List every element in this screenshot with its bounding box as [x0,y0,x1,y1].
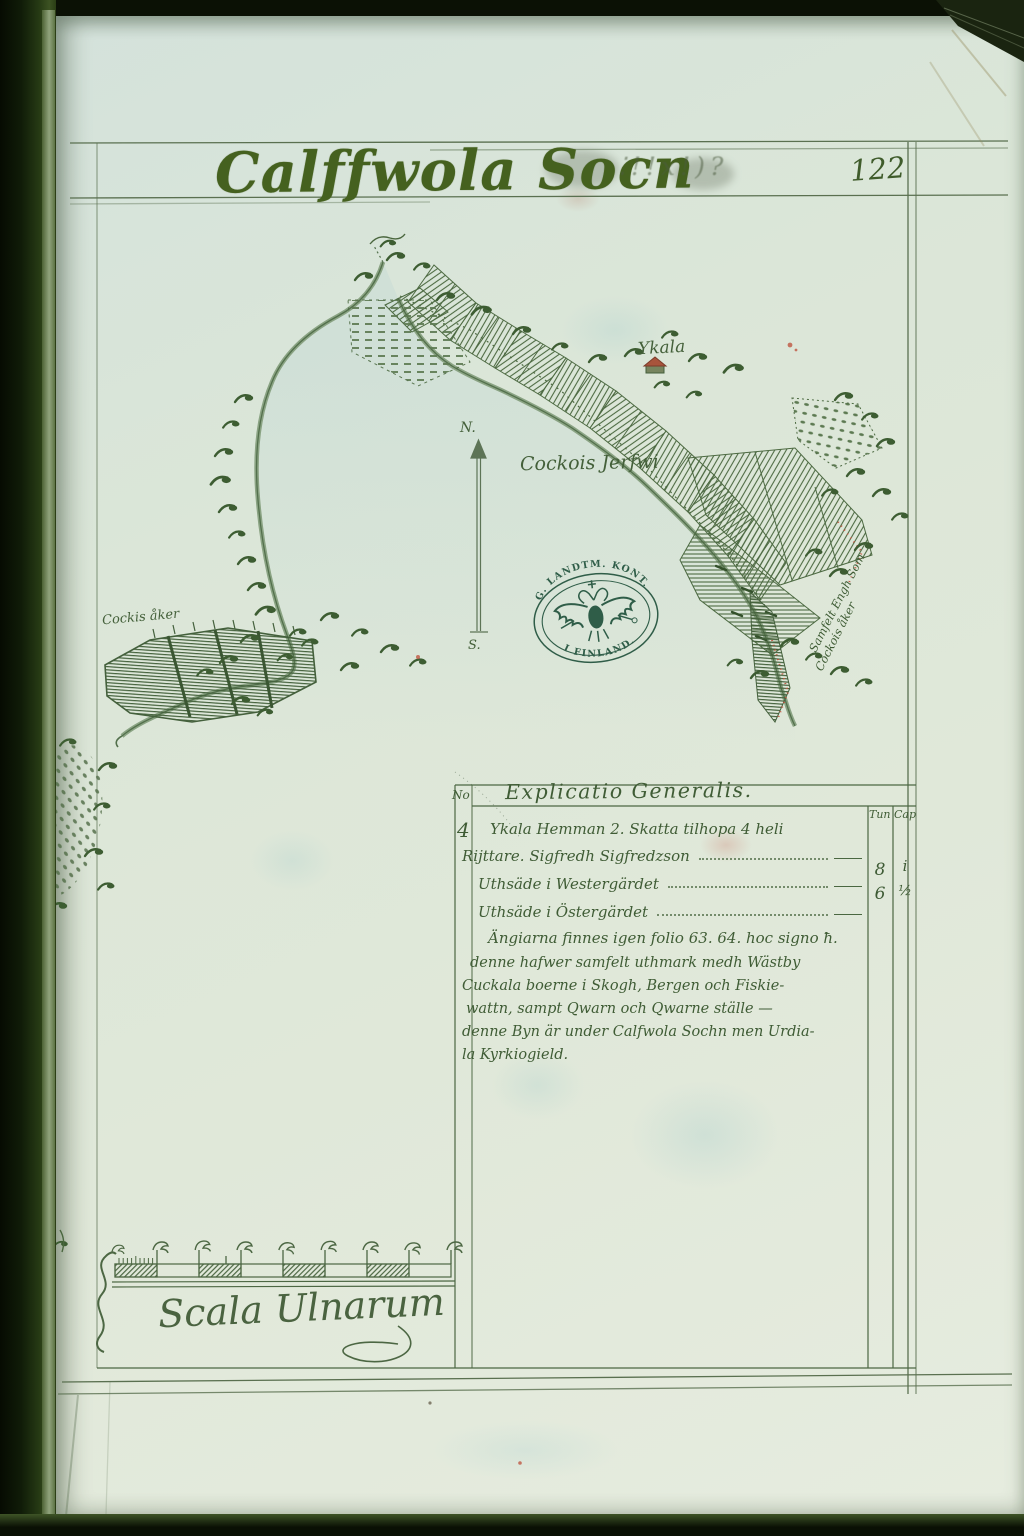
tun-column-header: Tun [869,808,891,821]
cap-value: ½ [894,883,916,899]
margin-doodle [5,737,118,1252]
tun-value: 6 [870,884,890,904]
compass-north-label: N. [460,420,476,436]
tun-value: 8 [870,860,890,880]
village-label: Ykala [638,337,686,359]
entry-line: Rijttare. Sigfredh Sigfredzson [462,847,862,865]
house-icon [644,357,666,373]
note-line: denne Byn är under Calfwola Sochn men Ur… [462,1024,815,1040]
entry-line: Uthsäde i Westergärdet [478,875,862,893]
title-smudge-marks: ⁚!!x!)? [618,152,728,181]
map-drawing: G. LANDTM. KONT. I FINLAND. [0,0,1024,1536]
entry-line: Ykala Hemman 2. Skatta tilhopa 4 heli [490,820,862,838]
compass-south-label: S. [468,638,481,653]
note-line: wattn, sampt Qwarn och Qwarne ställe — [466,1001,773,1017]
page-stack-corner [930,0,1024,146]
table-rules [97,785,916,1368]
cap-column-header: Cap [894,808,916,821]
entry-line: Ängiarna finnes igen folio 63. 64. hoc s… [488,929,862,947]
no-column-header: No [452,788,470,802]
entry-line: Uthsäde i Östergärdet [478,903,862,921]
book-edge-bottom [0,1514,1024,1536]
scale-flourish [97,1252,116,1352]
note-line: la Kyrkiogield. [462,1047,568,1063]
lake-label: Cockois Jerfwi [520,451,659,475]
page-number: 122 [849,150,907,188]
note-line: Cuckala boerne i Skogh, Bergen och Fiski… [462,978,784,994]
explicatio-title: Explicatio Generalis. [505,778,753,804]
no-value: 4 [457,818,470,842]
cap-value: i [895,857,915,875]
label-flourish [343,1326,411,1362]
note-line: denne hafwer samfelt uthmark medh Wästby [470,955,800,971]
scanned-atlas-page: { "page": { "title": "Calffwola Socn", "… [0,0,1024,1536]
